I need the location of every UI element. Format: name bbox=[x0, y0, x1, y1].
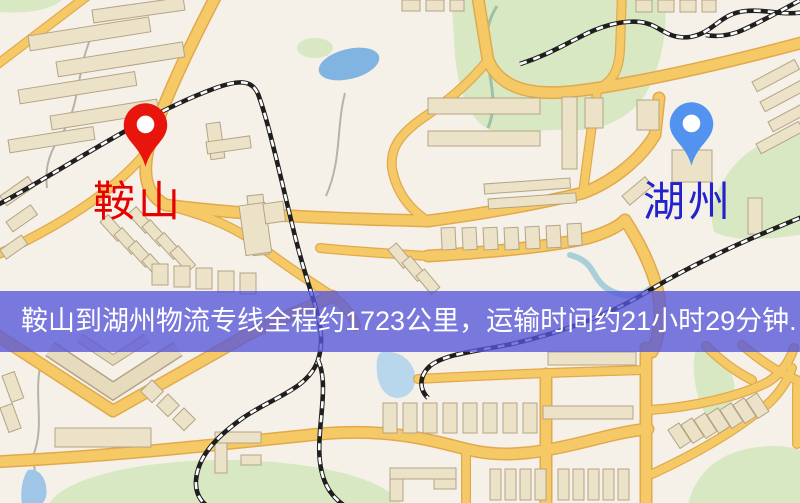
route-summary-text: 鞍山到湖州物流专线全程约1723公里，运输时间约21小时29分钟. bbox=[0, 308, 797, 335]
map-canvas bbox=[0, 0, 800, 503]
huzhou-pin-icon[interactable] bbox=[668, 101, 715, 167]
map-screenshot: 鞍山到湖州物流专线全程约1723公里，运输时间约21小时29分钟. 鞍山 湖州 bbox=[0, 0, 800, 503]
anshan-label: 鞍山 bbox=[78, 181, 198, 223]
huzhou-label: 湖州 bbox=[628, 181, 748, 223]
info-banner: 鞍山到湖州物流专线全程约1723公里，运输时间约21小时29分钟. bbox=[0, 291, 800, 352]
anshan-pin-icon[interactable] bbox=[122, 102, 169, 168]
